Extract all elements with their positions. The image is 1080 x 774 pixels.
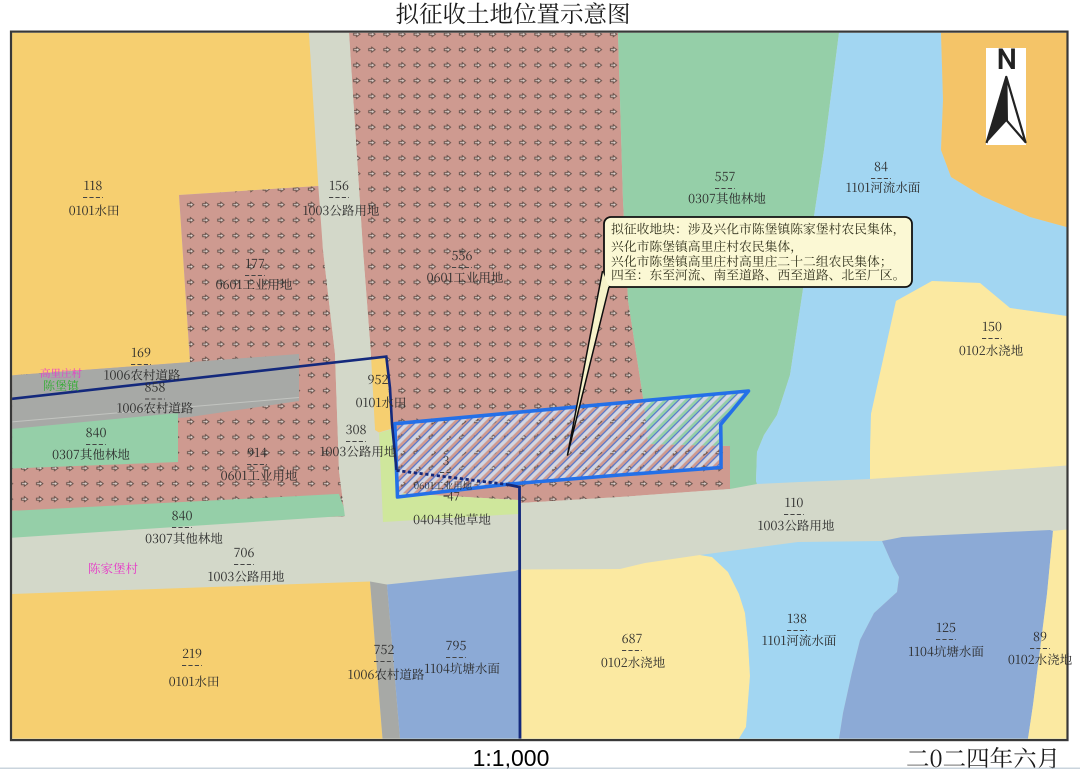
svg-text:1:1,000: 1:1,000 (473, 745, 550, 769)
